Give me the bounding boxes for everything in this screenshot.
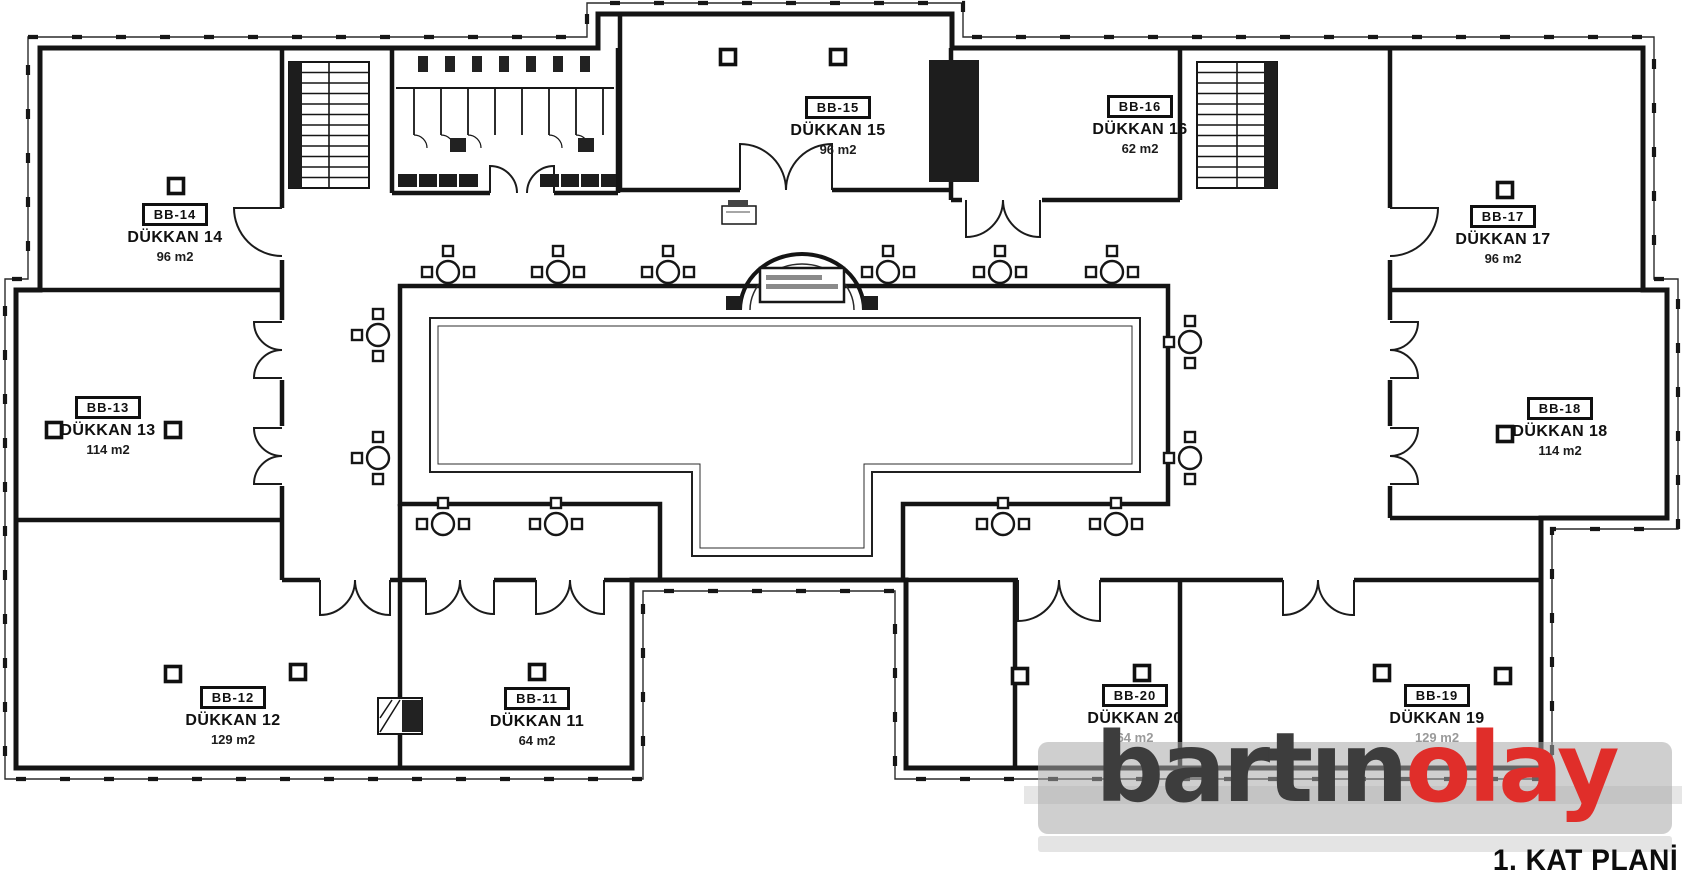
room-area: 114 m2	[23, 442, 193, 457]
room-area: 96 m2	[753, 142, 923, 157]
room-area: 62 m2	[1055, 141, 1225, 156]
unit-id-badge: BB-16	[1107, 95, 1174, 118]
stairs-left-icon	[289, 62, 369, 188]
room-name: DÜKKAN 13	[23, 422, 193, 440]
room-label-bb-18: BB-18 DÜKKAN 18 114 m2	[1475, 397, 1645, 458]
room-name: DÜKKAN 14	[90, 229, 260, 247]
room-label-bb-14: BB-14 DÜKKAN 14 96 m2	[90, 203, 260, 264]
door-arcs	[234, 144, 1438, 621]
unit-id-badge: BB-17	[1470, 205, 1537, 228]
wc-block	[396, 56, 616, 187]
unit-id-badge: BB-11	[504, 687, 570, 710]
atrium	[400, 286, 1168, 580]
unit-id-badge: BB-19	[1404, 684, 1471, 707]
room-area: 114 m2	[1475, 443, 1645, 458]
room-area: 96 m2	[1418, 251, 1588, 266]
room-name: DÜKKAN 16	[1055, 121, 1225, 139]
page-title: 1. KAT PLANİ	[1493, 844, 1678, 878]
unit-id-badge: BB-18	[1527, 397, 1594, 420]
floor-plan: BB-14 DÜKKAN 14 96 m2 BB-15 DÜKKAN 15 96…	[0, 0, 1682, 888]
watermark-logo-dark: bartın	[1095, 712, 1405, 824]
room-area: 64 m2	[452, 733, 622, 748]
room-label-bb-11: BB-11 DÜKKAN 11 64 m2	[452, 687, 622, 748]
service-shaft	[378, 698, 422, 734]
unit-id-badge: BB-13	[75, 396, 142, 419]
room-name: DÜKKAN 11	[452, 713, 622, 731]
room-name: DÜKKAN 12	[148, 712, 318, 730]
room-name: DÜKKAN 15	[753, 122, 923, 140]
watermark-logo: bartınolay	[1040, 718, 1672, 819]
info-desk	[722, 200, 756, 224]
unit-id-badge: BB-12	[200, 686, 267, 709]
room-label-bb-17: BB-17 DÜKKAN 17 96 m2	[1418, 205, 1588, 266]
room-name: DÜKKAN 18	[1475, 423, 1645, 441]
room-label-bb-16: BB-16 DÜKKAN 16 62 m2	[1055, 95, 1225, 156]
unit-id-badge: BB-15	[805, 96, 872, 119]
room-area: 129 m2	[148, 732, 318, 747]
elevator-shaft	[929, 60, 979, 182]
room-label-bb-13: BB-13 DÜKKAN 13 114 m2	[23, 396, 193, 457]
room-label-bb-15: BB-15 DÜKKAN 15 96 m2	[753, 96, 923, 157]
entrance-vestibule	[726, 254, 878, 310]
unit-id-badge: BB-14	[142, 203, 209, 226]
room-area: 96 m2	[90, 249, 260, 264]
watermark-logo-red: olay	[1405, 712, 1616, 824]
room-name: DÜKKAN 17	[1418, 231, 1588, 249]
room-label-bb-12: BB-12 DÜKKAN 12 129 m2	[148, 686, 318, 747]
unit-id-badge: BB-20	[1102, 684, 1169, 707]
